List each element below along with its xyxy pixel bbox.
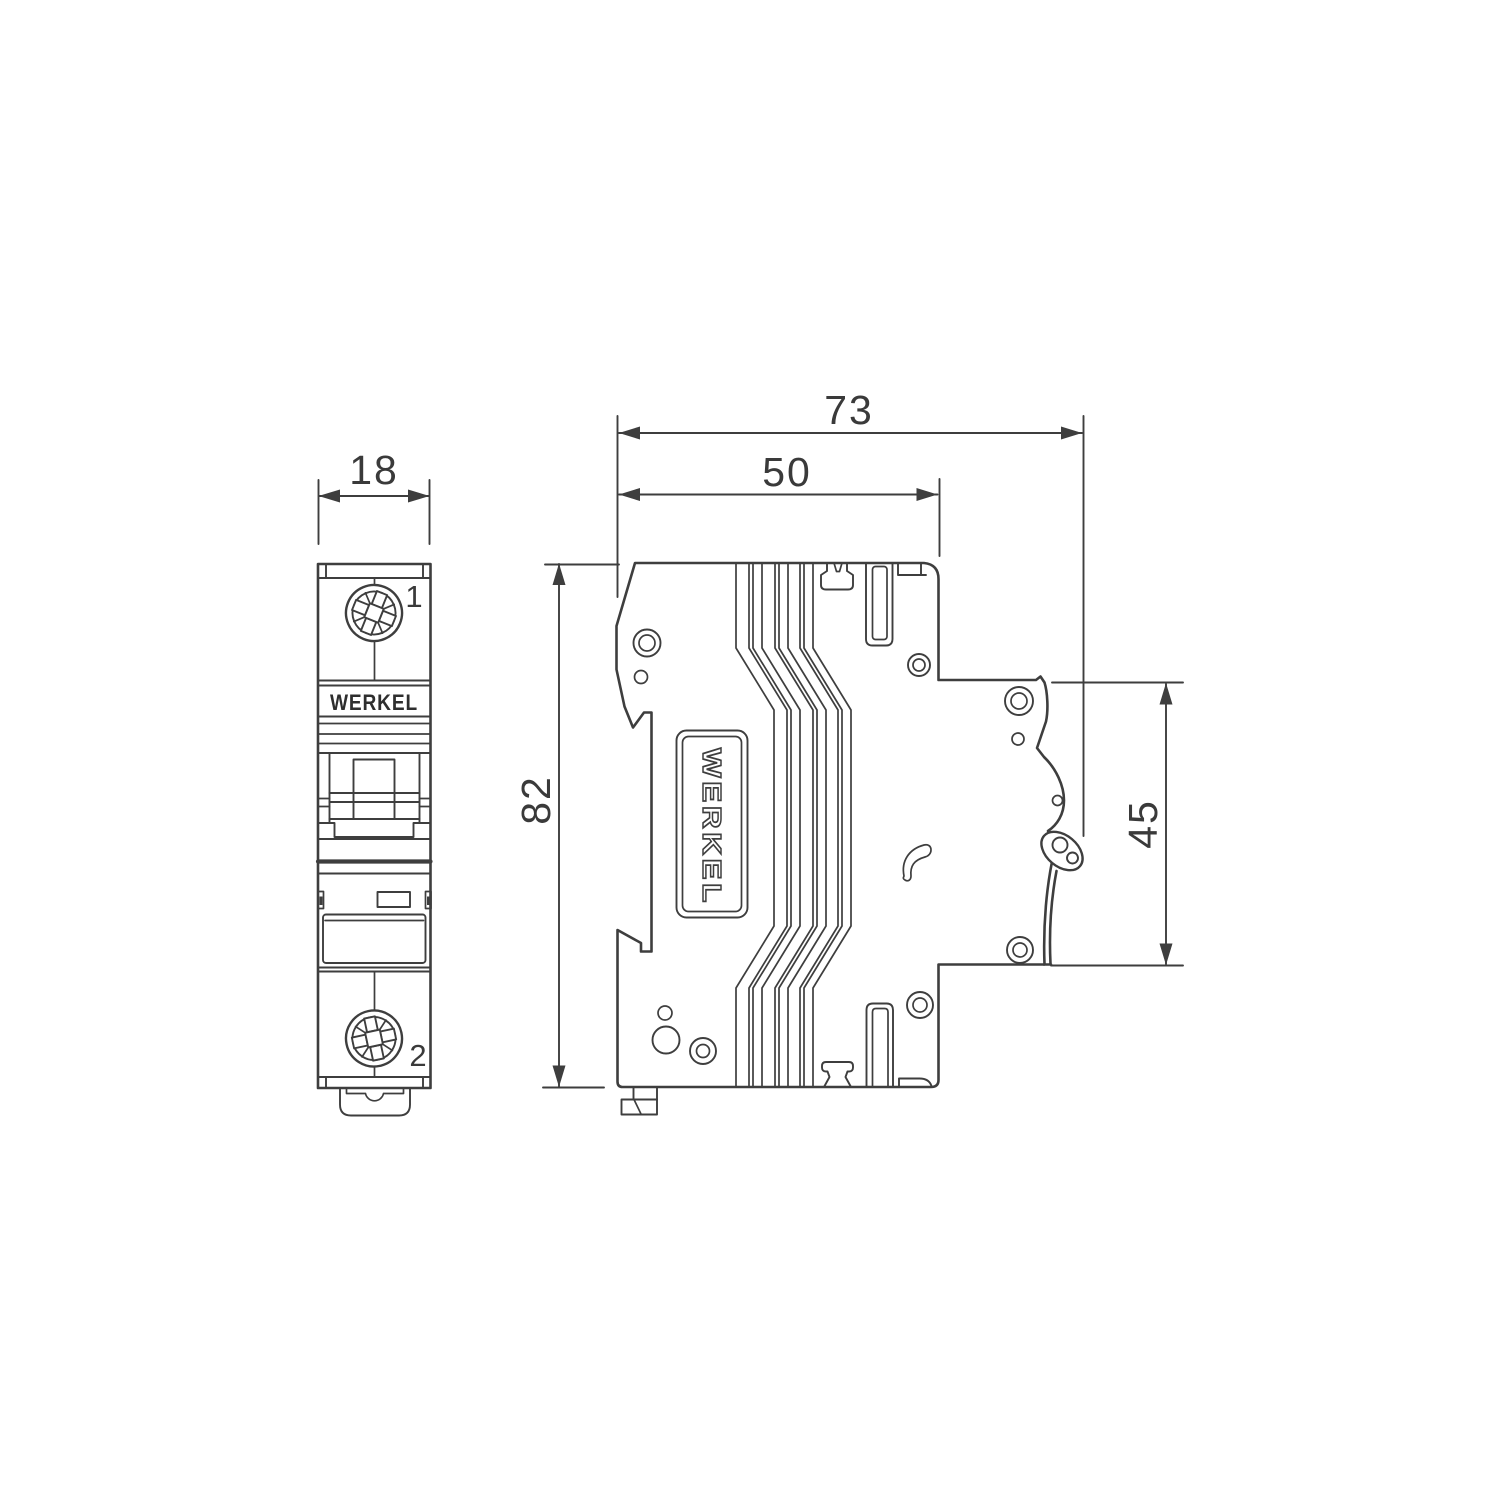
dimension-height: 82: [513, 564, 619, 1088]
terminal-2-label: 2: [409, 1038, 426, 1073]
dimension-front-width: 18: [319, 447, 430, 544]
top-edge-details: [821, 563, 926, 646]
arrowhead-down-icon: [1160, 944, 1173, 966]
screw-terminal-2-icon: [341, 1005, 407, 1071]
side-body-outline: [617, 563, 1065, 1087]
dim-body-depth-label: 50: [762, 449, 812, 495]
werkel-logo-side: WERKEL: [697, 748, 727, 906]
screw-terminal-1-icon: [338, 577, 411, 650]
din-notch-top: [821, 563, 853, 590]
side-clip-right: [426, 892, 432, 909]
arrowhead-right-icon: [917, 488, 938, 501]
toggle-lever: [330, 760, 420, 820]
front-plate: [323, 915, 426, 964]
arrowhead-up-icon: [1160, 683, 1173, 705]
mould-mark: [903, 845, 931, 881]
side-clip-left: [318, 892, 324, 909]
werkel-logo-front: WERKEL: [330, 690, 418, 715]
dim-height-label: 82: [513, 775, 559, 825]
arrowhead-left-icon: [619, 427, 640, 440]
dimension-body-depth: 50: [619, 449, 940, 556]
arrowhead-up-icon: [553, 564, 566, 586]
din-tab-bottom: [822, 1062, 853, 1087]
din-rail-clip-front: [340, 1088, 410, 1116]
din-slider-clip: [622, 1087, 658, 1115]
dim-width-label: 18: [349, 447, 399, 493]
arrowhead-right-icon: [408, 490, 430, 503]
top-slot: [866, 563, 893, 646]
dimension-front-protrusion: 45: [1051, 683, 1183, 966]
dim-total-depth-label: 73: [824, 387, 874, 433]
arrowhead-right-icon: [1061, 427, 1082, 440]
arrowhead-down-icon: [553, 1066, 566, 1088]
arrowhead-left-icon: [319, 490, 341, 503]
technical-drawing-page: 18: [0, 0, 1500, 1500]
side-view: WERKEL: [617, 563, 1090, 1115]
case-rib-lines: [736, 563, 851, 1087]
lever-pad: [1034, 824, 1090, 878]
brand-plate: WERKEL: [677, 731, 748, 918]
front-view: 18: [318, 447, 431, 1116]
marking-window: [378, 892, 411, 907]
arrowhead-left-icon: [619, 488, 640, 501]
breaker-dimension-drawing: 18: [0, 0, 1500, 1500]
dim-front-protrusion-label: 45: [1120, 799, 1166, 849]
bottom-slot: [867, 1004, 894, 1088]
terminal-1-label: 1: [405, 579, 422, 614]
